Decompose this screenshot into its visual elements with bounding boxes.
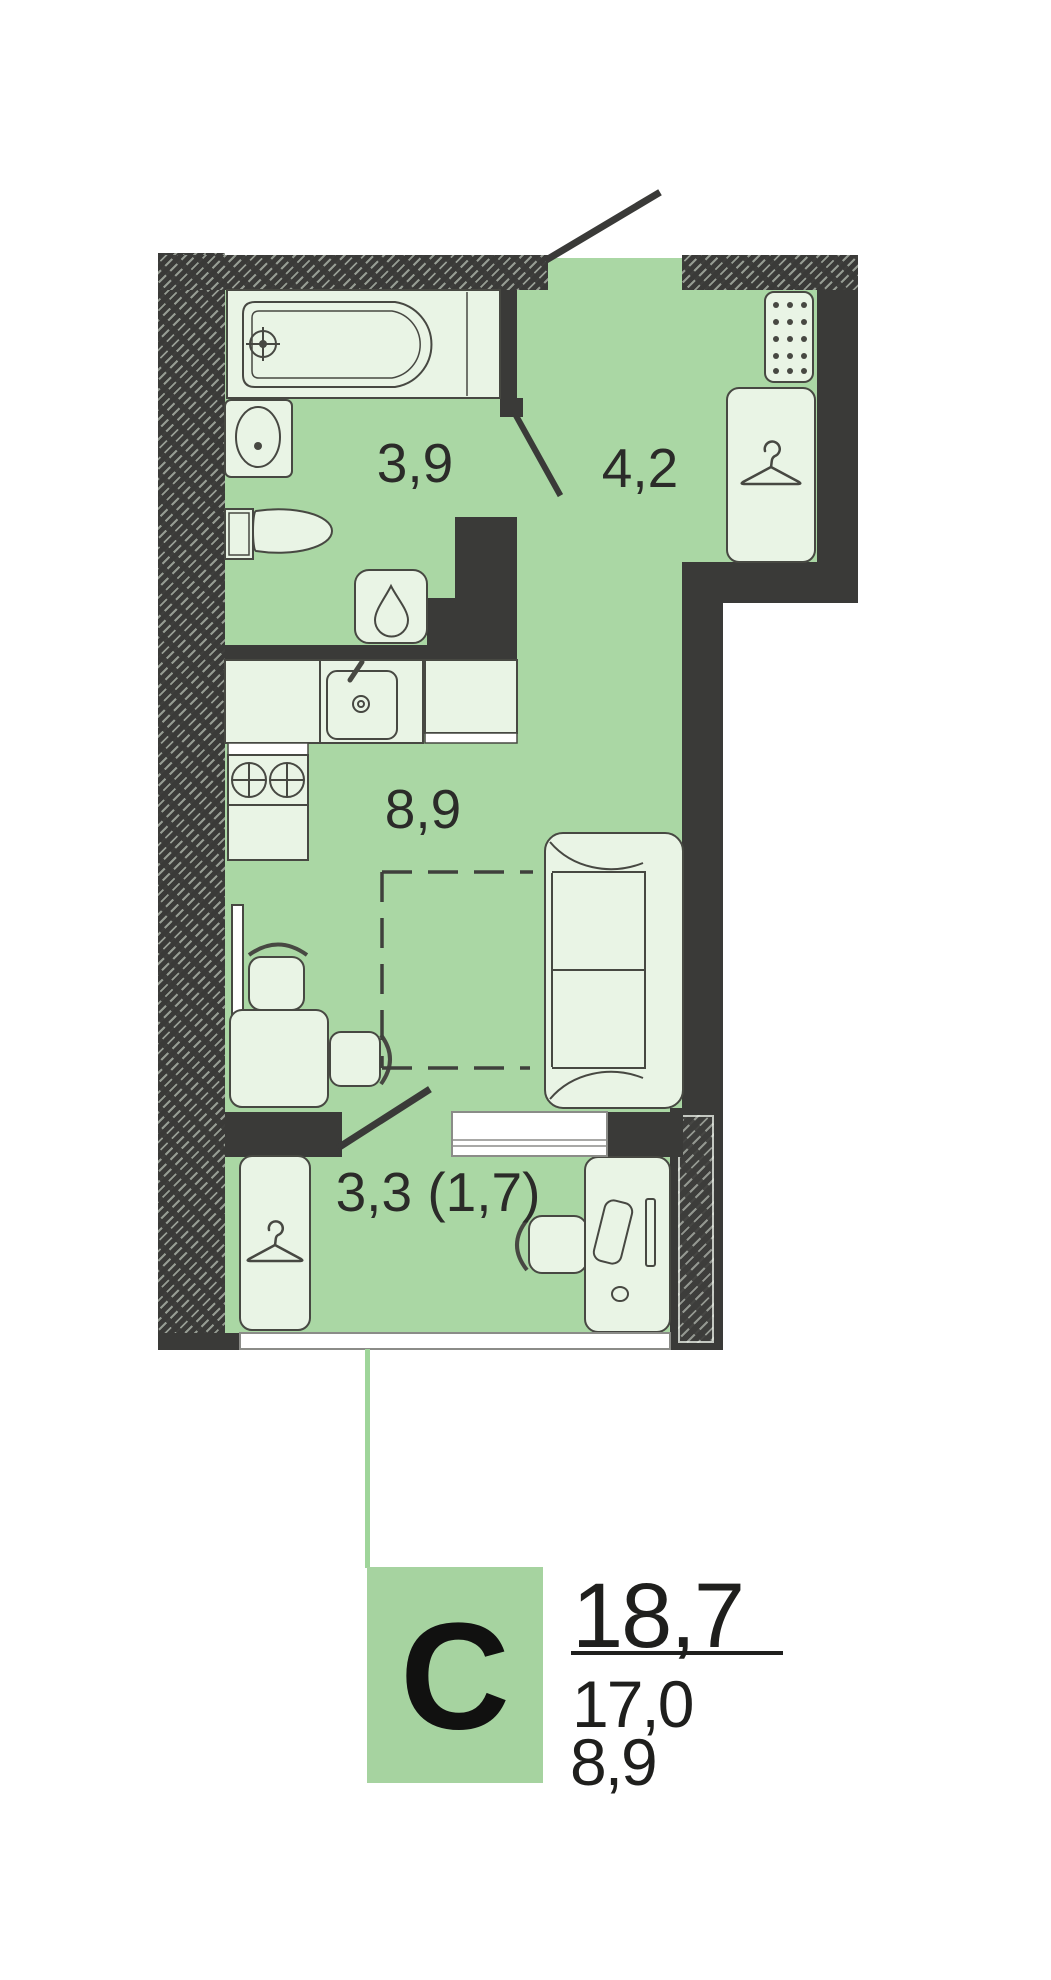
stamp-type-letter: С: [400, 1590, 510, 1765]
bed-dashed-outline: [382, 872, 533, 1068]
stove-burners-icon: [228, 743, 308, 860]
balcony-door-swing-line: [341, 1091, 427, 1146]
room-label-balcony: 3,3 (1,7): [336, 1160, 541, 1224]
stamp-fraction-rule: [571, 1651, 783, 1655]
shoe-cabinet-dots-icon: [765, 292, 813, 382]
sofa-icon: [545, 833, 683, 1108]
balcony-wardrobe: [240, 1156, 310, 1330]
room-label-bathroom: 3,9: [377, 431, 453, 495]
water-heater-drop-icon: [355, 570, 427, 643]
room-desk: [230, 1010, 328, 1107]
room-label-hallway: 4,2: [602, 436, 678, 500]
balcony-desk: [585, 1157, 670, 1332]
stamp-living-area: 8,9: [570, 1729, 656, 1795]
stamp-box: С: [367, 1567, 543, 1783]
toilet-icon: [225, 509, 332, 559]
floor-plan: 3,9 4,2 8,9 3,3 (1,7) С 18,7 17,0 8,9: [0, 0, 1051, 1980]
room-chair-top: [249, 945, 307, 1011]
kitchen-sink-icon: [320, 660, 423, 743]
balcony-glazing: [240, 1333, 670, 1349]
entrance-door-swing-line: [548, 194, 657, 259]
window-sill: [452, 1112, 607, 1156]
bathroom-door-swing-line: [514, 412, 559, 493]
stamp-total-area: 18,7: [572, 1570, 743, 1662]
hall-wardrobe: [727, 388, 815, 562]
bathtub-icon: [227, 290, 500, 398]
bath-sink-icon: [225, 400, 292, 477]
stamp-connector-line: [365, 1349, 370, 1568]
room-label-living-room: 8,9: [385, 777, 461, 841]
balcony-chair: [517, 1216, 587, 1273]
